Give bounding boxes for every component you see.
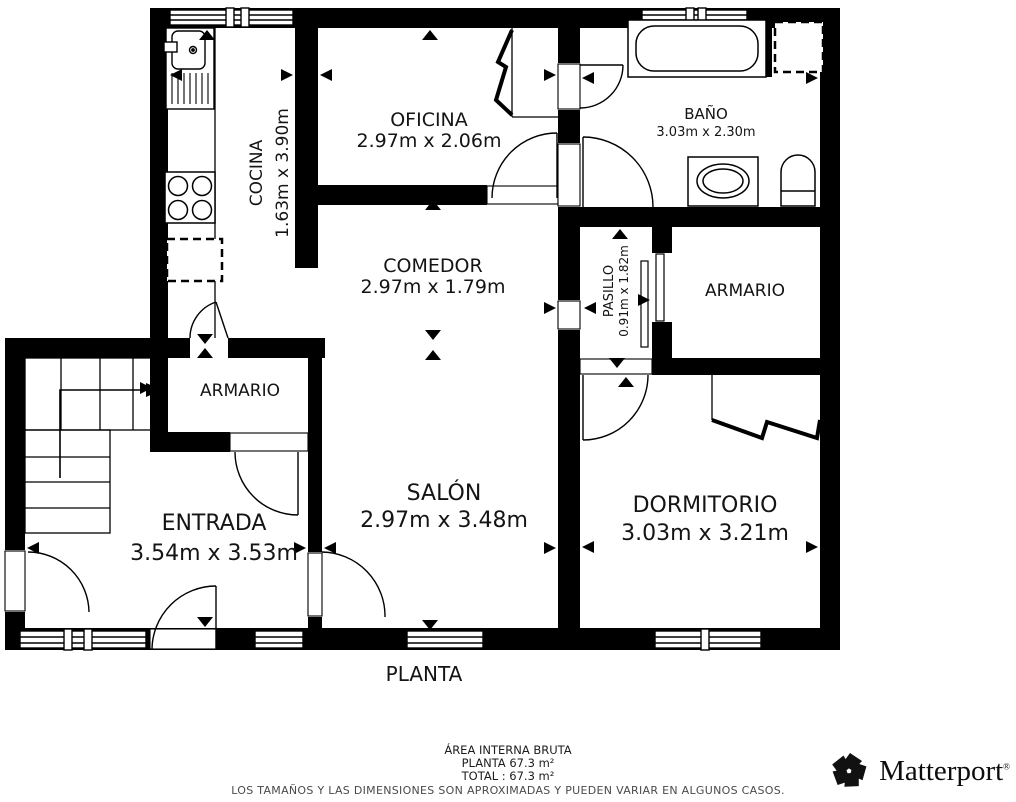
bathtub-icon	[628, 20, 766, 77]
toilet-icon	[781, 155, 815, 206]
room-dims-entrada: 3.54m x 3.53m	[130, 541, 298, 566]
matterport-logo: Matterport®	[828, 750, 1010, 792]
room-label-oficina: OFICINA	[390, 109, 468, 131]
room-label-armario-superior: ARMARIO	[705, 281, 785, 301]
room-dims-salon: 2.97m x 3.48m	[360, 508, 528, 533]
appliance-dashed-box-kitchen	[167, 239, 222, 281]
room-label-comedor: COMEDOR	[383, 255, 482, 277]
matterport-logo-icon	[828, 750, 870, 792]
room-dims-bano: 3.03m x 2.30m	[656, 125, 755, 140]
room-dims-oficina: 2.97m x 2.06m	[357, 130, 502, 152]
appliance-dashed-box-bathroom	[775, 22, 823, 72]
room-label-cocina: COCINA	[247, 139, 267, 206]
kitchen-sink-icon	[164, 28, 214, 109]
room-dims-pasillo: 0.91m x 1.82m	[617, 245, 631, 337]
room-label-bano: BAÑO	[684, 104, 728, 123]
room-dims-cocina: 1.63m x 3.90m	[273, 108, 293, 238]
bathroom-sink-icon	[688, 157, 758, 206]
room-dims-dormitorio: 3.03m x 3.21m	[621, 521, 789, 546]
stove-icon	[165, 172, 215, 223]
matterport-logo-text: Matterport®	[879, 755, 1010, 788]
matterport-wordmark: Matterport	[879, 755, 1003, 787]
room-label-armario-entrada: ARMARIO	[200, 381, 280, 401]
room-label-entrada: ENTRADA	[162, 511, 267, 536]
closet-bifold-dormitorio-icon	[712, 375, 820, 438]
room-label-pasillo: PASILLO	[602, 265, 617, 317]
registered-trademark-symbol: ®	[1003, 761, 1010, 771]
room-label-salon: SALÓN	[407, 480, 482, 506]
plan-title: PLANTA	[386, 662, 463, 686]
floor-plan-canvas: COCINA 1.63m x 3.90m OFICINA 2.97m x 2.0…	[0, 0, 1016, 798]
room-dims-comedor: 2.97m x 1.79m	[361, 276, 506, 298]
room-label-dormitorio: DORMITORIO	[633, 493, 778, 518]
floor-plan-drawing: COCINA 1.63m x 3.90m OFICINA 2.97m x 2.0…	[0, 0, 1016, 798]
